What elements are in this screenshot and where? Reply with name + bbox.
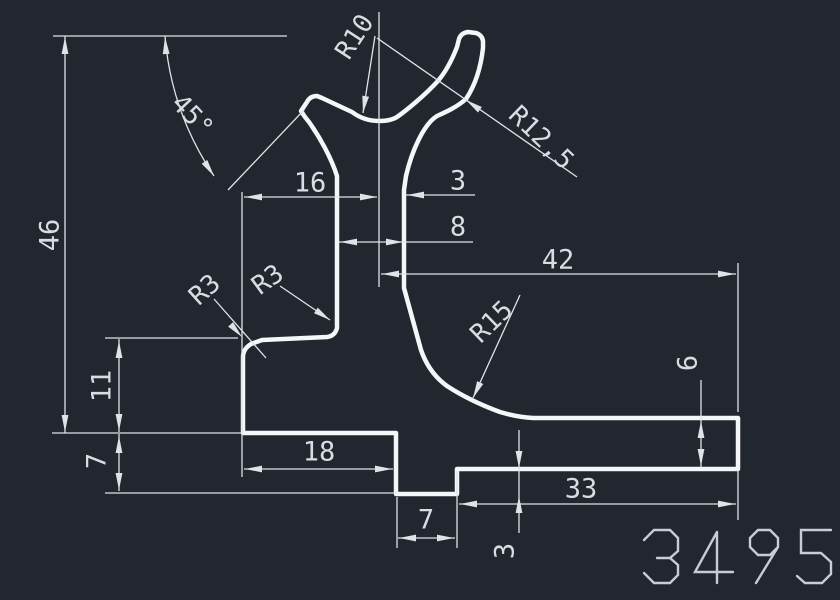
dim-arrow (516, 451, 523, 468)
extension-line (228, 110, 304, 190)
dim-33: 33 (459, 474, 736, 508)
dim-label-r12-5: R12,5 (502, 100, 579, 176)
dim-arrow (698, 421, 705, 438)
dim-r10: R10 (330, 9, 381, 113)
dim-r3-right: R3 (247, 259, 330, 320)
dim-arrow (62, 415, 69, 432)
dim-label-8: 8 (450, 212, 466, 243)
dim-label-3-top: 3 (450, 166, 466, 197)
cad-drawing-canvas: 46 45° R10 R12,5 16 3 8 (0, 0, 840, 600)
dim-6: 6 (673, 355, 705, 467)
dim-arrow (314, 308, 330, 320)
dim-label-r15: R15 (465, 295, 520, 349)
dim-label-3-bottom: 3 (490, 543, 521, 559)
dim-arrow (245, 194, 262, 201)
drawing-svg: 46 45° R10 R12,5 16 3 8 (0, 0, 840, 600)
dim-arrow (116, 436, 123, 453)
dim-label-46: 46 (35, 219, 66, 252)
dim-label-33: 33 (565, 474, 598, 505)
dim-label-6: 6 (673, 355, 704, 371)
dim-45deg: 45° (163, 36, 304, 190)
dim-label-16: 16 (294, 168, 327, 199)
dim-arrow (340, 239, 357, 246)
leader-line (214, 299, 266, 358)
part-number-digit (644, 530, 678, 583)
profile-outline (243, 32, 738, 494)
dim-r15: R15 (465, 295, 520, 398)
dim-label-42: 42 (542, 245, 575, 276)
dim-label-18: 18 (303, 437, 336, 468)
part-number-digit (695, 532, 733, 583)
dim-arrow (116, 341, 123, 358)
dim-7-bottom: 7 (398, 505, 455, 542)
dim-arrow (718, 501, 735, 508)
dim-46: 46 (35, 36, 288, 433)
dim-3-top: 3 (406, 166, 475, 199)
dim-label-11: 11 (87, 370, 118, 403)
dim-arrow (360, 194, 377, 201)
dim-arrow (466, 100, 482, 113)
dim-arrow (407, 192, 424, 199)
part-number (644, 530, 831, 583)
dim-arrow (698, 449, 705, 466)
dim-arrow (245, 466, 262, 473)
dim-label-r3-right: R3 (247, 259, 290, 302)
dim-arrow (163, 37, 170, 54)
dim-arrow (399, 535, 416, 542)
dim-arrow (382, 271, 399, 278)
dim-label-45deg: 45° (165, 89, 219, 144)
dim-arrow (460, 501, 477, 508)
dim-arrow (228, 322, 242, 337)
dim-18: 18 (244, 437, 393, 473)
dim-label-r10: R10 (330, 9, 381, 65)
dim-arrow (62, 37, 69, 54)
dim-arrow (473, 381, 483, 398)
part-number-digit (750, 530, 778, 583)
dim-label-7-bottom: 7 (418, 505, 434, 536)
dim-arrow (116, 414, 123, 431)
part-number-digit (797, 530, 831, 583)
dim-arrow (116, 473, 123, 490)
dim-11: 11 (87, 339, 123, 432)
dim-arrow (437, 535, 454, 542)
dim-arrow (375, 466, 392, 473)
dim-label-7-left: 7 (82, 453, 113, 469)
dim-arrow (362, 96, 369, 113)
dim-3-bottom: 3 (490, 430, 523, 559)
dim-7-left: 7 (82, 434, 123, 491)
dim-16: 16 (244, 168, 377, 201)
dim-42: 42 (381, 245, 736, 278)
dim-arrow (202, 160, 214, 176)
dim-arrow (386, 239, 403, 246)
dim-arrow (718, 271, 735, 278)
